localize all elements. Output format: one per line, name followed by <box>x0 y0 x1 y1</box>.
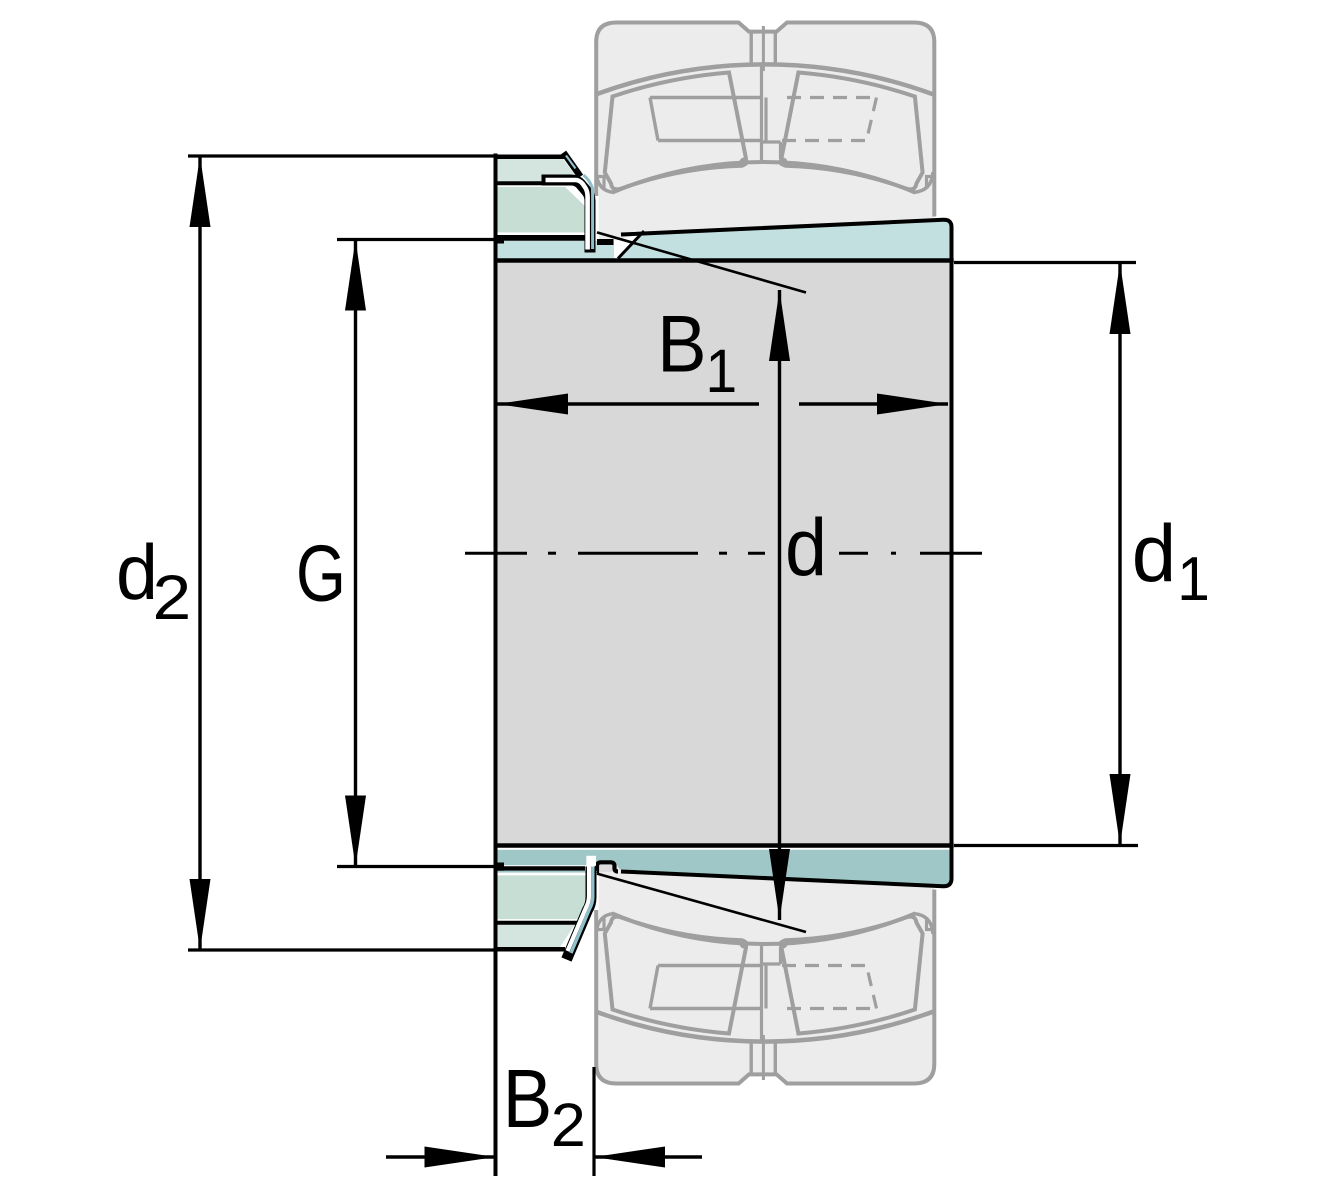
svg-text:1: 1 <box>1177 543 1209 613</box>
svg-text:d: d <box>1132 508 1176 599</box>
svg-text:B: B <box>657 300 706 389</box>
svg-text:G: G <box>296 530 346 618</box>
svg-text:2: 2 <box>551 1092 586 1160</box>
svg-text:2: 2 <box>153 563 192 633</box>
svg-text:1: 1 <box>706 338 737 405</box>
svg-text:B: B <box>503 1052 553 1144</box>
svg-text:d: d <box>785 502 827 593</box>
